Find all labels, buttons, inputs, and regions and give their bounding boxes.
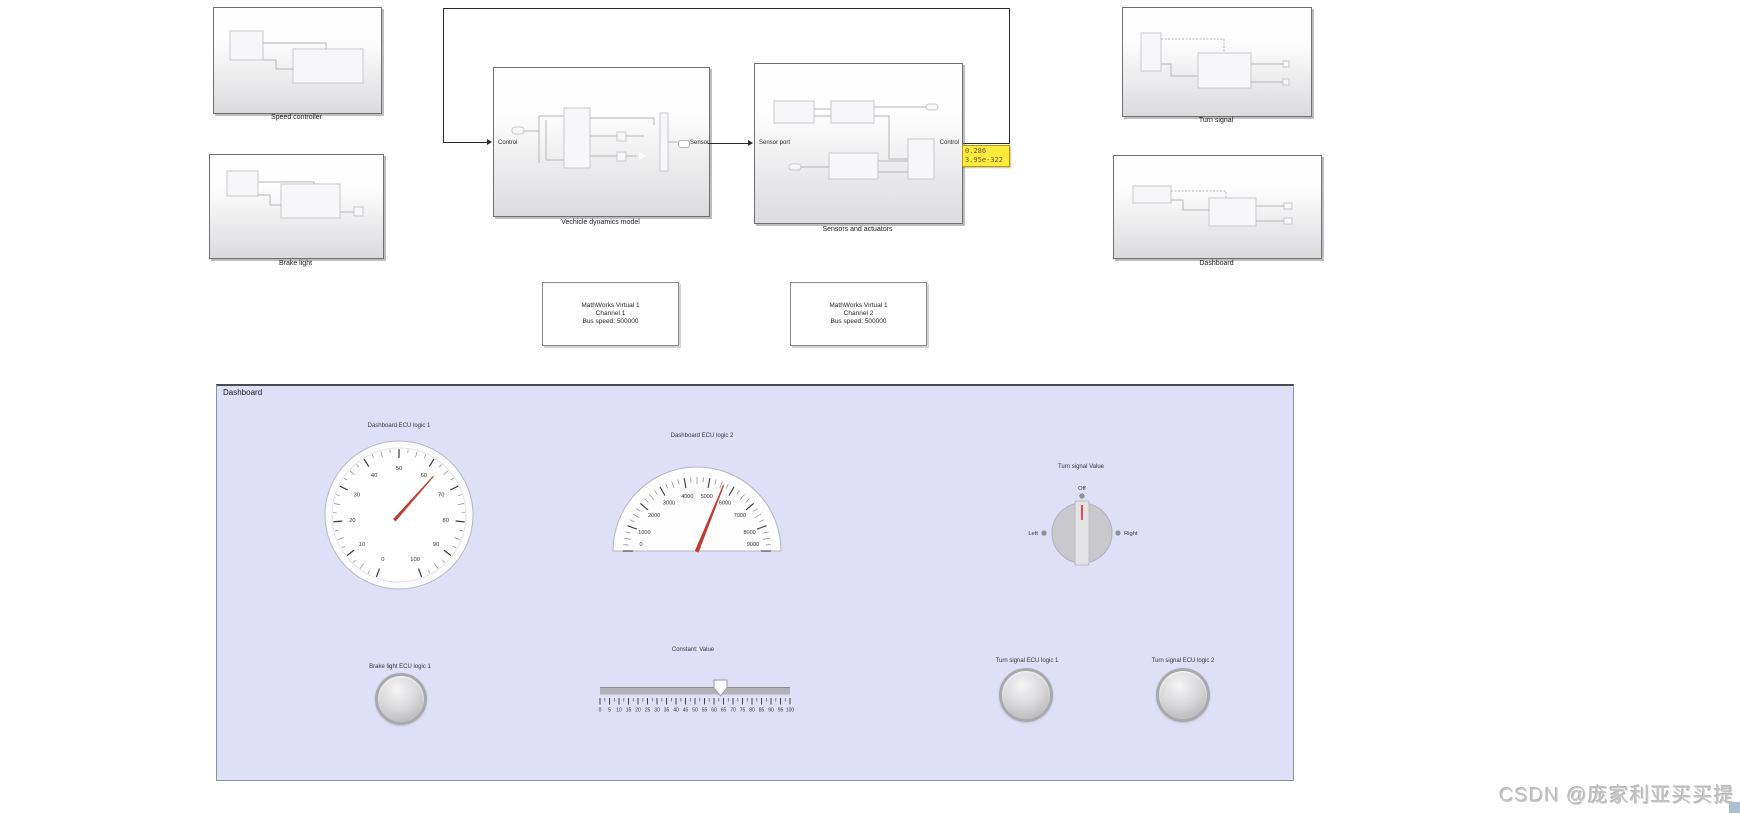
corner-square [1729, 802, 1740, 813]
svg-text:0: 0 [639, 542, 642, 548]
port-label-sensor: Sensor [690, 140, 709, 146]
can-bus-speed: Bus speed: 500000 [791, 318, 926, 326]
lamp-turn2-title: Turn signal ECU logic 2 [1133, 658, 1233, 664]
can-bus-speed: Bus speed: 500000 [543, 318, 678, 326]
sensors-actuators-block[interactable]: Sensor port Control [754, 63, 963, 224]
port-value-tooltip: 0.286 3.95e-322 [962, 145, 1010, 167]
slider-title: Constant: Value [643, 647, 743, 653]
svg-text:90: 90 [768, 708, 774, 714]
block-label: Sensors and actuators [754, 226, 961, 233]
can-config-block-2[interactable]: MathWorks Virtual 1 Channel 2 Bus speed:… [790, 282, 927, 346]
port-label-control-out: Control [940, 140, 959, 146]
svg-text:2000: 2000 [648, 513, 660, 519]
simulink-model-canvas: { "diagram": { "blocks": { "speed_contro… [0, 0, 1740, 813]
svg-text:60: 60 [711, 708, 717, 714]
svg-text:20: 20 [349, 518, 355, 524]
speed-controller-block[interactable] [213, 7, 382, 114]
svg-text:5000: 5000 [701, 494, 713, 500]
svg-text:40: 40 [673, 708, 679, 714]
port-value-line2: 3.95e-322 [965, 156, 1007, 165]
rotary-switch[interactable]: LeftOffRight [1010, 478, 1155, 590]
feedback-wire [443, 8, 444, 142]
svg-text:10: 10 [359, 542, 365, 548]
block-label: Dashboard [1113, 260, 1320, 267]
svg-text:50: 50 [396, 466, 402, 472]
vehicle-dynamics-block[interactable]: Control Sensor [493, 67, 710, 217]
csdn-watermark: CSDN @庞家利亚买买提 [1499, 779, 1735, 808]
svg-text:100: 100 [786, 708, 795, 714]
svg-text:8000: 8000 [743, 530, 755, 536]
svg-text:95: 95 [778, 708, 784, 714]
inner-diagram [1114, 156, 1321, 258]
slider-track[interactable] [600, 687, 790, 695]
port-label-sensor-port: Sensor port [759, 140, 790, 146]
block-label: Brake light [209, 260, 382, 267]
feedback-wire [1009, 8, 1010, 143]
brake-light-block[interactable] [209, 154, 384, 259]
rotary-switch-title: Turn signal Value [1031, 464, 1131, 470]
can-vendor: MathWorks Virtual 1 [791, 302, 926, 310]
svg-text:1000: 1000 [638, 530, 650, 536]
wire-arrowhead [748, 140, 753, 146]
port-value-line1: 0.286 [965, 147, 1007, 156]
svg-text:45: 45 [683, 708, 689, 714]
svg-text:80: 80 [749, 708, 755, 714]
wire-arrowhead [487, 139, 492, 145]
svg-text:6000: 6000 [719, 501, 731, 507]
panel-title: Dashboard [223, 388, 262, 397]
block-label: Vechicle dynamics model [493, 219, 708, 226]
svg-text:75: 75 [740, 708, 746, 714]
svg-text:9000: 9000 [747, 542, 759, 548]
can-channel: Channel 2 [791, 310, 926, 318]
inner-diagram [1123, 8, 1311, 116]
svg-text:5: 5 [608, 708, 611, 714]
block-label: Turn signal [1122, 117, 1310, 124]
svg-text:25: 25 [645, 708, 651, 714]
svg-text:100: 100 [410, 557, 420, 563]
gauge2-title: Dashboard ECU logic 2 [622, 433, 782, 439]
sensor-wire [708, 143, 748, 144]
slider-ticks: 0510152025303540455055606570758085909510… [596, 697, 796, 715]
svg-text:4000: 4000 [681, 494, 693, 500]
svg-text:7000: 7000 [734, 513, 746, 519]
feedback-wire [443, 8, 1009, 9]
block-label: Speed controller [213, 114, 380, 121]
svg-text:70: 70 [438, 492, 444, 498]
svg-text:30: 30 [654, 708, 660, 714]
inner-diagram [210, 155, 383, 258]
svg-text:35: 35 [664, 708, 670, 714]
svg-text:10: 10 [616, 708, 622, 714]
feedback-wire [960, 143, 1010, 144]
svg-text:20: 20 [635, 708, 641, 714]
svg-text:65: 65 [721, 708, 727, 714]
lamp-turn-signal-2 [1156, 668, 1210, 722]
svg-text:70: 70 [730, 708, 736, 714]
can-config-block-1[interactable]: MathWorks Virtual 1 Channel 1 Bus speed:… [542, 282, 679, 346]
lamp-turn1-title: Turn signal ECU logic 1 [977, 658, 1077, 664]
can-vendor: MathWorks Virtual 1 [543, 302, 678, 310]
svg-text:15: 15 [626, 708, 632, 714]
gauge1-title: Dashboard ECU logic 1 [314, 423, 484, 429]
svg-text:85: 85 [759, 708, 765, 714]
dashboard-block[interactable] [1113, 155, 1322, 259]
turn-signal-block[interactable] [1122, 7, 1312, 117]
slider-thumb[interactable] [713, 679, 728, 697]
lamp-brake-title: Brake light ECU logic 1 [350, 664, 450, 670]
svg-text:40: 40 [371, 473, 377, 479]
svg-text:50: 50 [692, 708, 698, 714]
can-channel: Channel 1 [543, 310, 678, 318]
svg-text:60: 60 [421, 473, 427, 479]
svg-text:80: 80 [442, 518, 448, 524]
svg-text:30: 30 [354, 492, 360, 498]
circular-gauge: 0102030405060708090100 [309, 431, 489, 599]
inner-diagram [214, 8, 381, 113]
svg-text:90: 90 [433, 542, 439, 548]
svg-text:0: 0 [599, 708, 602, 714]
svg-text:55: 55 [702, 708, 708, 714]
semicircular-gauge: 0100020003000400050006000700080009000 [605, 458, 789, 562]
svg-text:3000: 3000 [663, 501, 675, 507]
svg-text:Left: Left [1028, 531, 1038, 537]
svg-text:Off: Off [1078, 486, 1086, 492]
inner-diagram [494, 68, 709, 216]
svg-text:0: 0 [381, 557, 384, 563]
svg-text:Right: Right [1124, 531, 1138, 537]
output-port-pill [678, 140, 690, 148]
port-label-control: Control [498, 140, 517, 146]
lamp-turn-signal-1 [999, 668, 1053, 722]
lamp-brake-light [375, 673, 427, 725]
feedback-wire [443, 142, 487, 143]
